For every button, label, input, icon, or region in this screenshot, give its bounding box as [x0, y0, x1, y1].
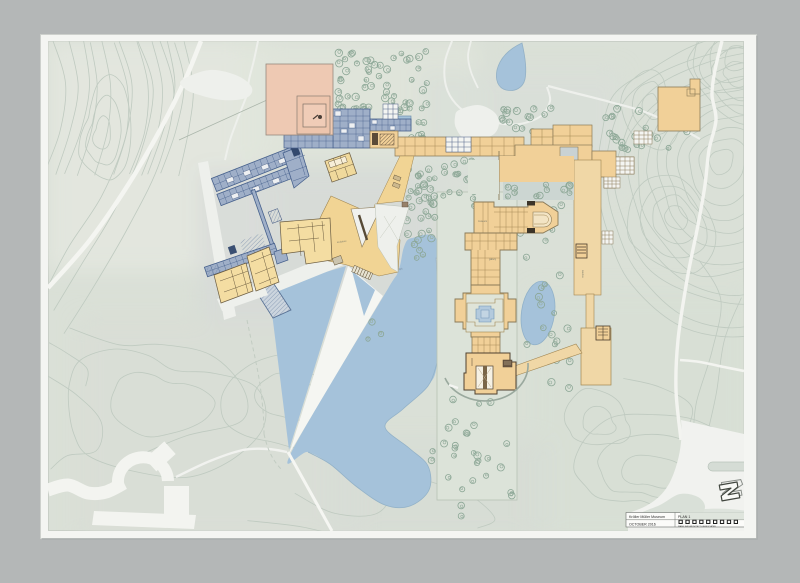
svg-text:Kröller Müller Museum: Kröller Müller Museum	[629, 515, 665, 519]
svg-text:OCTOBER 2016: OCTOBER 2016	[629, 523, 656, 527]
svg-text:museum: museum	[478, 220, 487, 223]
svg-text:gallery: gallery	[489, 258, 497, 261]
svg-text:WANG SHU ARCHITECT & ASSOCIATE: WANG SHU ARCHITECT & ASSOCIATES	[678, 525, 716, 528]
svg-text:avenue: avenue	[581, 270, 584, 279]
svg-text:PLAN 1: PLAN 1	[678, 515, 690, 519]
